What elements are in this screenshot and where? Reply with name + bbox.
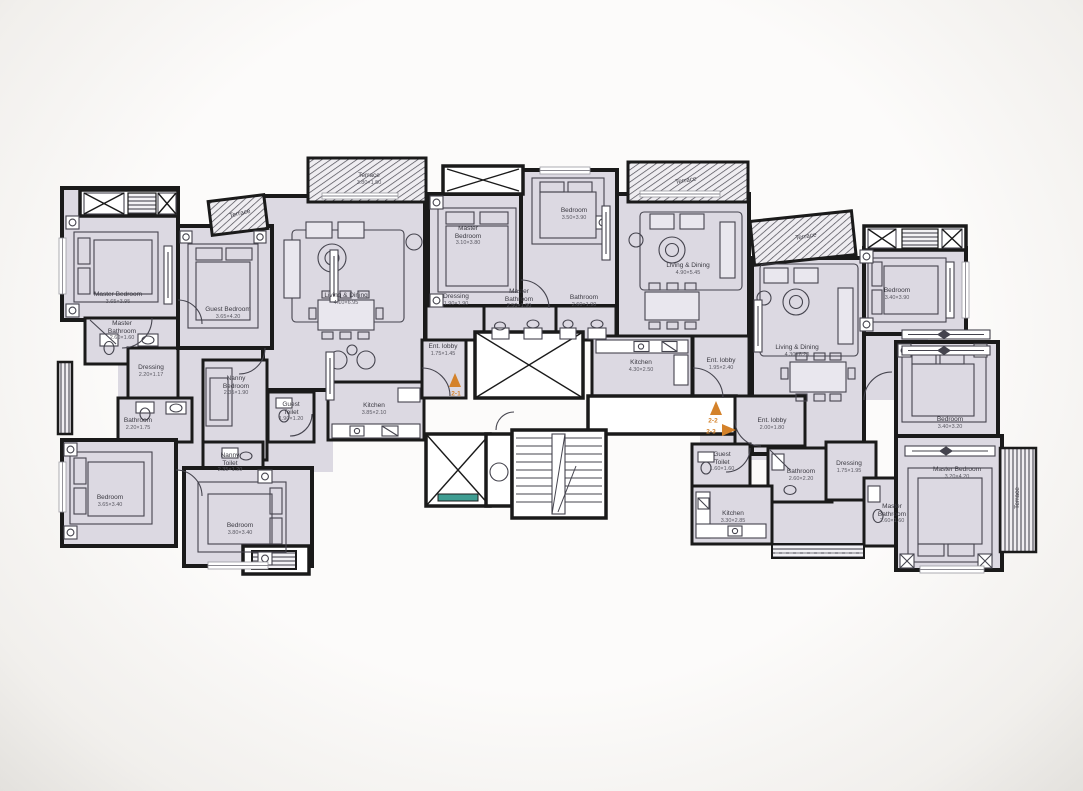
unit-marker-2-1: 2-1 (451, 391, 460, 398)
label-bedroom-bottom-center: Bedroom3.80×3.40 (227, 522, 253, 536)
label-nanny-bedroom: Nanny Bedroom2.35×1.90 (219, 375, 253, 397)
ledge-bottom-right (772, 544, 864, 558)
label-bathroom-left: Bathroom2.20×1.75 (124, 417, 152, 431)
label-ent-lobby-center2: Ent. lobby1.95×2.40 (704, 357, 738, 371)
ledge-left-edge (58, 362, 72, 434)
unit-marker-2-2: 2-2 (708, 418, 717, 425)
label-terrace-top-left: Terrace3.80×1.50 (357, 172, 382, 186)
label-master-bathroom-right: Master Bathroom2.60×1.60 (875, 503, 909, 525)
label-terrace-far-right: Terrace (1014, 487, 1022, 509)
label-dressing-left: Dressing2.20×1.17 (138, 364, 164, 378)
unit-marker-2-3: 2-3 (706, 429, 715, 436)
label-guest-toilet-left: Guest Toilet1.90×1.20 (274, 401, 308, 423)
label-master-bathroom-center: Master Bathroom2.50×1.90 (502, 288, 536, 310)
label-master-bedroom-center: Master Bedroom3.10×3.80 (448, 225, 488, 247)
label-kitchen-right: Kitchen3.30×2.85 (721, 510, 746, 524)
label-kitchen-left: Kitchen3.85×2.10 (362, 402, 387, 416)
label-guest-bedroom: Guest Bedroom3.65×4.20 (205, 306, 251, 320)
label-bathroom-right: Bathroom2.60×2.20 (787, 468, 815, 482)
label-bathroom-center: Bathroom2.60×1.90 (570, 294, 598, 308)
label-master-bathroom-left: Master Bathroom2.60×1.60 (105, 320, 139, 342)
floor-plan-page: Master Bedroom3.65×3.95 Master Bathroom2… (0, 0, 1083, 791)
label-bedroom-center: Bedroom3.50×3.90 (561, 207, 587, 221)
label-bedroom-right-mid: Bedroom3.40×3.20 (937, 416, 963, 430)
label-bedroom-bottom-left: Bedroom3.65×3.40 (97, 494, 123, 508)
label-master-bedroom-left: Master Bedroom3.65×3.95 (94, 291, 142, 305)
label-guest-toilet-right: Guest Toilet1.60×1.60 (705, 451, 739, 473)
label-kitchen-center: Kitchen4.30×2.50 (629, 359, 654, 373)
label-nanny-toilet: Nanny Toilet2.35×1.20 (213, 452, 247, 474)
label-ent-lobby-right: Ent. lobby2.00×1.80 (758, 417, 787, 431)
label-ent-lobby-center: Ent. lobby1.75×1.45 (426, 343, 460, 357)
elevator-door-accent (438, 494, 478, 501)
label-master-bedroom-right: Master Bedroom3.20×4.20 (933, 466, 981, 480)
dining-table-icon (645, 283, 699, 329)
label-living-dining-left: Living & Dining4.10×6.95 (324, 292, 367, 306)
label-bedroom-right-top: Bedroom3.40×3.90 (884, 287, 910, 301)
label-dressing-center: Dressing1.90×1.90 (443, 293, 469, 307)
floor-plan-drawing (0, 0, 1083, 791)
label-living-dining-center: Living & Dining4.90×5.45 (666, 262, 709, 276)
label-dressing-right: Dressing1.75×1.95 (836, 460, 862, 474)
label-living-dining-right: Living & Dining4.30×6.20 (775, 344, 818, 358)
